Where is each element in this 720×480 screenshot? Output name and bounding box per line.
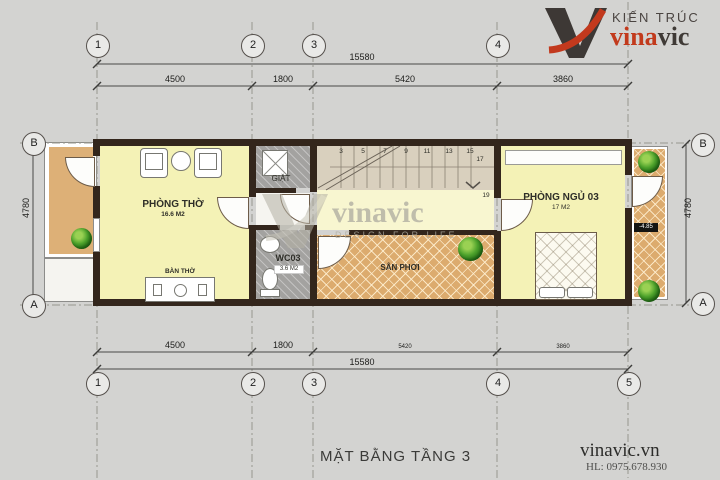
plant-left-balcony <box>71 228 92 249</box>
altar-candle-right <box>198 284 207 296</box>
stair-number: 17 <box>474 156 486 163</box>
room-label-san-phoi: SÂN PHƠI <box>360 264 440 273</box>
grid-bubble-top-3: 3 <box>302 34 326 58</box>
bed-pillow-left <box>539 287 565 298</box>
grid-bubble-bottom-1: 1 <box>86 372 110 396</box>
dim-seg-top-4: 3860 <box>533 74 593 84</box>
stair-number: 9 <box>400 148 412 155</box>
room-area-wc: 3.6 M2 <box>274 265 304 274</box>
wall-left-1 <box>93 139 100 156</box>
grid-bubble-top-4: 4 <box>486 34 510 58</box>
grid-bubble-bottom-4: 4 <box>486 372 510 396</box>
wall-giat-landing <box>249 188 296 193</box>
dim-total-top: 15580 <box>330 52 394 62</box>
wall-top <box>97 139 628 146</box>
window-left <box>93 218 100 252</box>
wall-right-b <box>625 208 632 306</box>
label-ban-tho: BÀN THỜ <box>156 268 204 275</box>
wall-grid4-b <box>494 231 501 306</box>
grid-bubble-bottom-5: 5 <box>617 372 641 396</box>
wc-sink <box>260 236 280 253</box>
wall-grid3-b <box>310 230 317 306</box>
stair-number: 11 <box>421 148 433 155</box>
wall-left-2 <box>93 186 100 218</box>
plant-right-balcony-top <box>638 151 660 173</box>
armchair-right-seat <box>199 153 217 170</box>
room-label-giat: GIẶT <box>261 175 301 184</box>
logo-word-red: vina <box>610 22 658 51</box>
dim-seg-bottom-4: 3860 <box>533 344 593 350</box>
stair-number: 19 <box>480 192 492 199</box>
room-label-wc: WC03 <box>268 254 308 264</box>
grid-bubble-top-2: 2 <box>241 34 265 58</box>
dim-side-right: 4780 <box>683 192 693 224</box>
watermark-tagline: DESIGN FOR LIFE <box>335 230 495 240</box>
bedroom-window-sill <box>505 150 622 165</box>
room-area-phong-ngu: 17 M2 <box>536 204 586 211</box>
logo-wordmark: vinavic <box>610 22 689 52</box>
level-marker: -4.85 <box>634 223 658 232</box>
wall-grid4-a <box>494 139 501 198</box>
altar-bowl <box>174 284 187 297</box>
logo-word-dark: vic <box>658 22 690 51</box>
dim-side-left: 4780 <box>21 192 31 224</box>
grid-bubble-bottom-2: 2 <box>241 372 265 396</box>
round-table <box>171 151 191 171</box>
stair-number: 15 <box>464 148 476 155</box>
grid-bubble-right-A: A <box>691 292 715 316</box>
dim-seg-top-1: 4500 <box>145 74 205 84</box>
armchair-left-seat <box>145 153 163 170</box>
footer-website: vinavic.vn <box>580 440 660 462</box>
left-service-box <box>44 258 97 302</box>
floor-plan-sheet: -4.85 vinavic DESIGN FOR LIFE PHÒNG THỜ … <box>0 0 720 480</box>
wall-landing-wc-b <box>305 225 317 230</box>
dim-seg-bottom-3: 5420 <box>375 344 435 350</box>
wc-toilet-tank <box>260 289 280 297</box>
room-label-phong-ngu: PHÒNG NGỦ 03 <box>506 192 616 203</box>
grid-bubble-left-B: B <box>22 132 46 156</box>
grid-bubble-right-B: B <box>691 133 715 157</box>
grid-bubble-top-1: 1 <box>86 34 110 58</box>
washing-machine <box>262 150 288 176</box>
wall-landing-wc-a <box>249 225 280 230</box>
plant-right-balcony-bottom <box>638 280 660 302</box>
wall-left-3 <box>93 252 100 306</box>
dim-seg-top-2: 1800 <box>253 74 313 84</box>
room-label-phong-tho: PHÒNG THỜ <box>123 199 223 210</box>
footer-hotline: HL: 0975.678.930 <box>586 461 667 473</box>
stair-number: 3 <box>335 148 347 155</box>
wall-right-a <box>625 139 632 175</box>
plant-san-phoi <box>458 237 483 261</box>
wall-grid2-b <box>249 229 256 306</box>
dim-seg-bottom-1: 4500 <box>145 340 205 350</box>
room-area-phong-tho: 16.6 M2 <box>143 211 203 218</box>
stair-number: 7 <box>379 148 391 155</box>
wall-grid3-a <box>310 139 317 192</box>
dim-seg-bottom-2: 1800 <box>253 340 313 350</box>
grid-bubble-left-A: A <box>22 294 46 318</box>
bed-pillow-right <box>567 287 593 298</box>
stair-number: 5 <box>357 148 369 155</box>
altar-candle-left <box>153 284 162 296</box>
grid-bubble-bottom-3: 3 <box>302 372 326 396</box>
drawing-title: MẶT BẰNG TẦNG 3 <box>320 448 520 465</box>
stair-number: 13 <box>443 148 455 155</box>
dim-seg-top-3: 5420 <box>375 74 435 84</box>
vinavic-logo-icon <box>541 2 613 60</box>
dim-total-bottom: 15580 <box>330 357 394 367</box>
watermark-brand: vinavic <box>332 196 472 230</box>
